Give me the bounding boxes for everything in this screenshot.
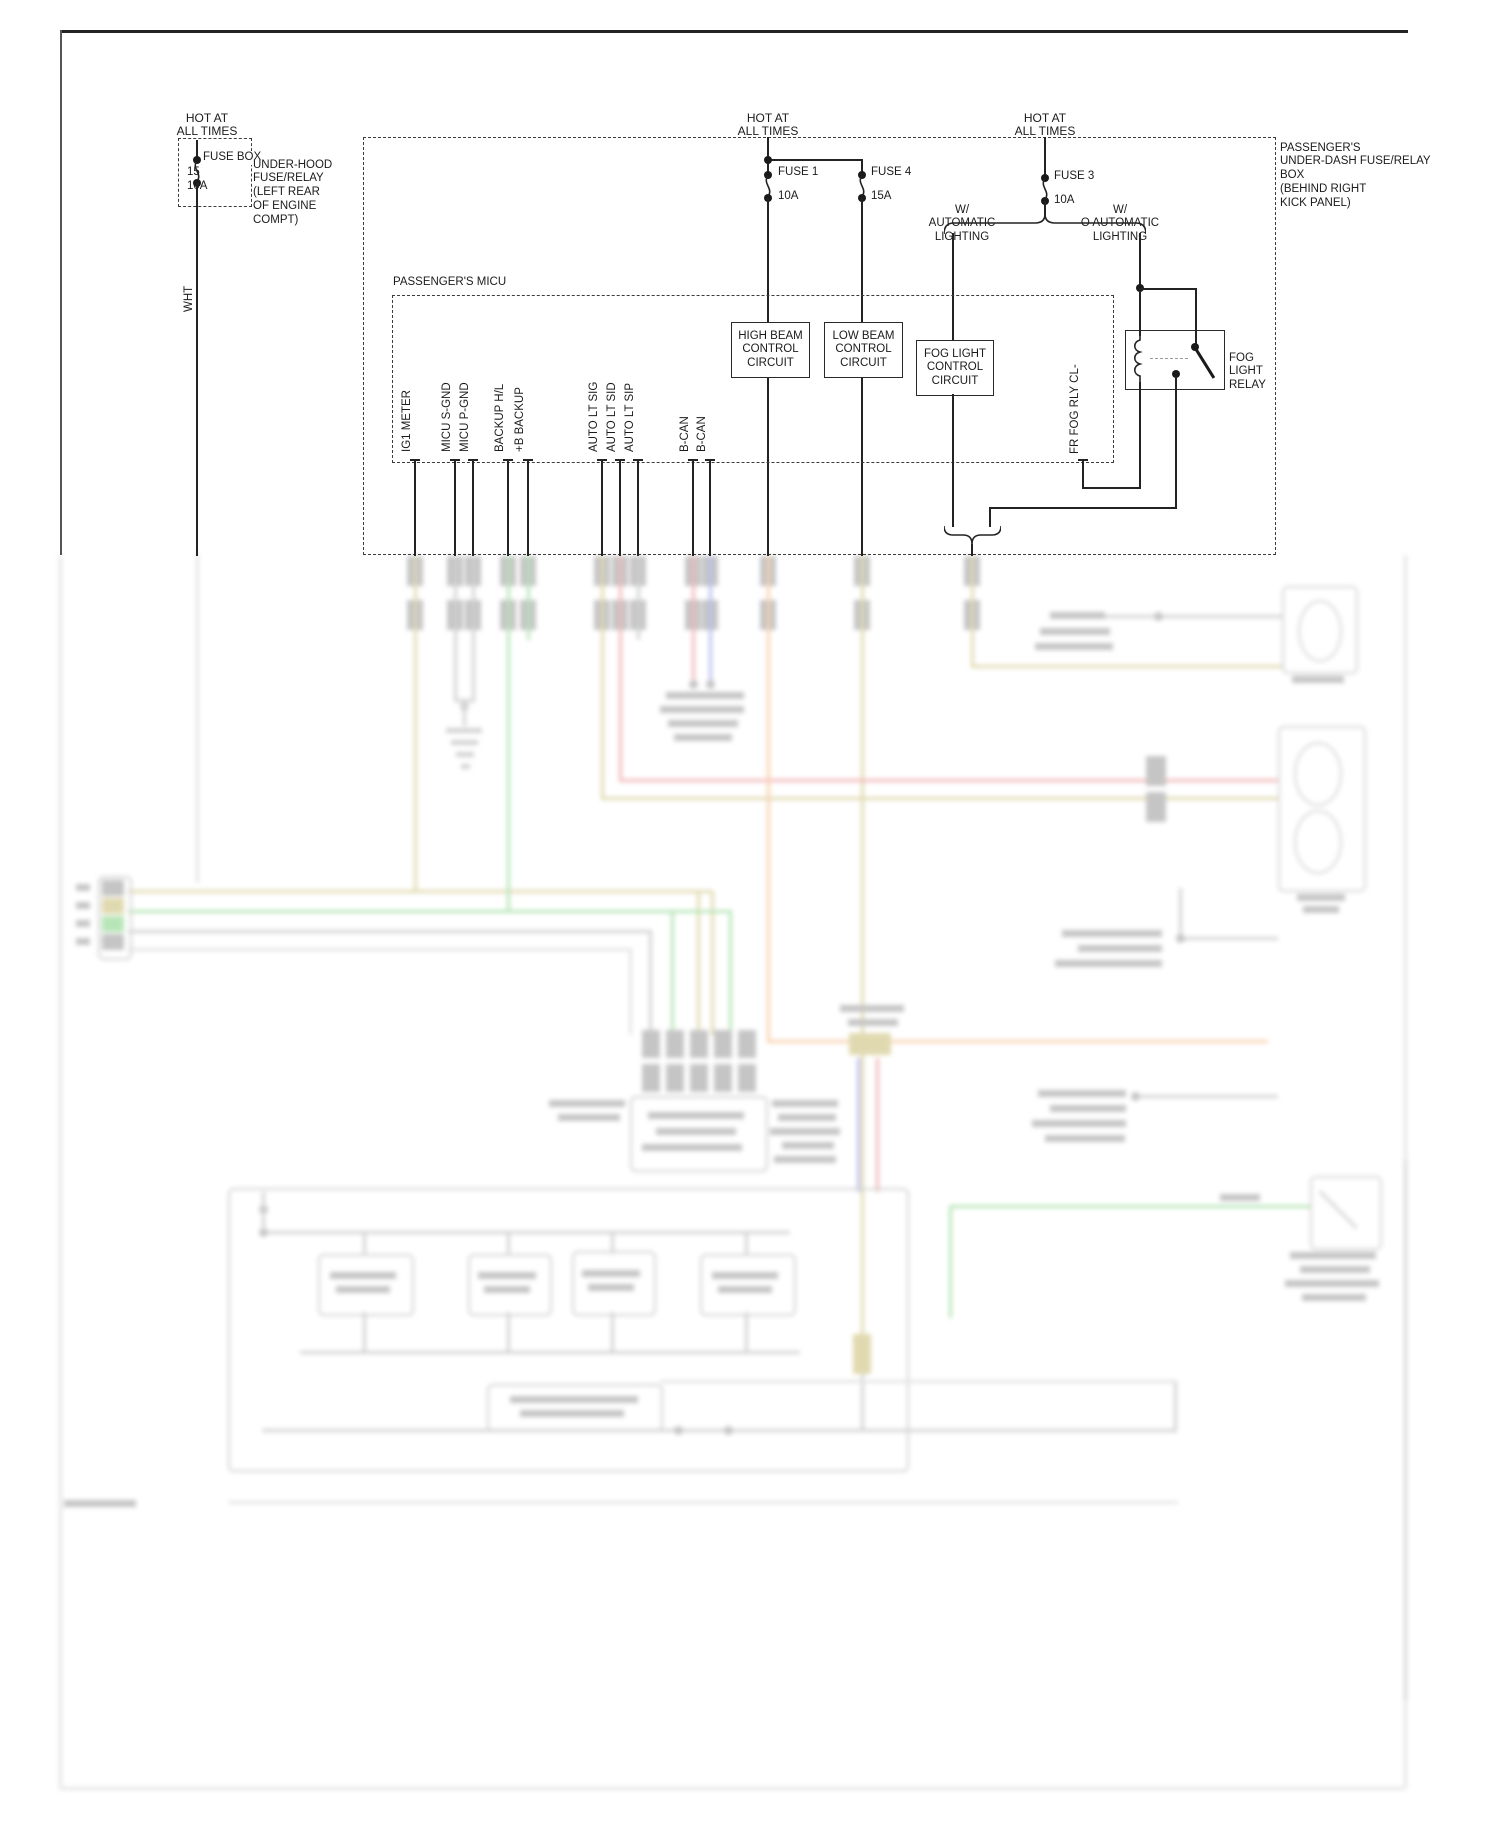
faded-shape (690, 1064, 708, 1092)
faded-shape (1135, 1095, 1278, 1098)
faded-shape (601, 556, 604, 800)
wiring-diagram-page: HOT ATALL TIMES HOT ATALL TIMES HOT ATAL… (0, 0, 1500, 1828)
faded-shape (767, 556, 770, 1043)
underhood-note: UNDER-HOODFUSE/RELAY(LEFT REAROF ENGINEC… (253, 131, 332, 255)
pin-wire (454, 461, 456, 556)
fuse-element-icon (1039, 178, 1051, 201)
pin-tick (410, 459, 420, 461)
faded-shape (527, 556, 530, 640)
faded-shape (602, 797, 1278, 800)
wire (1044, 137, 1046, 178)
faded-shape (318, 1254, 414, 1316)
faded-shape (484, 1286, 530, 1293)
faded-shape (637, 556, 640, 640)
fog-light-relay-label: FOGLIGHTRELAY (1229, 324, 1266, 421)
faded-shape (648, 1112, 744, 1119)
wire (952, 394, 954, 527)
frame-top (60, 30, 1408, 33)
faded-shape (64, 1500, 136, 1507)
fuse4-amps: 15A (871, 190, 891, 204)
faded-shape (712, 1272, 778, 1279)
faded-shape (414, 556, 417, 893)
faded-shape (128, 890, 712, 893)
wire (767, 159, 863, 161)
faded-shape (1146, 756, 1166, 786)
faded-shape (330, 1272, 396, 1279)
faded-shape (772, 1100, 838, 1107)
faded-shape (363, 1232, 366, 1254)
faded-shape (949, 1206, 952, 1318)
pin-wire (472, 461, 474, 556)
faded-shape (60, 1787, 1405, 1790)
faded-shape (770, 1128, 840, 1135)
faded-shape (1050, 1105, 1126, 1112)
faded-shape (1310, 1176, 1382, 1250)
wire (1139, 288, 1197, 290)
wire (1139, 382, 1141, 489)
pin-wire (527, 461, 529, 556)
fuse-left-number: 15 (187, 166, 200, 180)
faded-shape (1038, 1090, 1126, 1097)
fog-light-control-circuit-box: FOG LIGHTCONTROLCIRCUIT (916, 340, 994, 396)
faded-shape (1045, 1135, 1125, 1142)
faded-shape (709, 556, 712, 684)
faded-shape (76, 902, 90, 909)
low-beam-control-circuit-box: LOW BEAMCONTROLCIRCUIT (824, 322, 903, 378)
pin-tick (1078, 459, 1088, 461)
faded-shape (1176, 934, 1185, 943)
pin-wire (414, 461, 416, 556)
faded-shape (454, 556, 457, 702)
faded-shape (461, 764, 470, 769)
faded-shape (1154, 612, 1163, 621)
faded-shape (1105, 615, 1282, 618)
faded-shape (507, 556, 510, 913)
pin-wire (692, 461, 694, 556)
faded-shape (745, 1312, 748, 1352)
faded-shape (472, 556, 475, 702)
faded-shape (76, 884, 90, 891)
faded-shape (714, 1064, 732, 1092)
faded-shape (1055, 960, 1162, 967)
wire (1175, 377, 1177, 509)
pin-tick (615, 459, 625, 461)
wire (989, 507, 1177, 509)
faded-shape (262, 1429, 1175, 1432)
faded-shape (507, 1232, 510, 1254)
faded-shape (1303, 906, 1339, 913)
junction-dot (764, 156, 772, 164)
faded-shape (558, 1114, 620, 1121)
faded-shape (1294, 810, 1342, 874)
faded-shape (642, 1144, 742, 1151)
faded-shape (656, 1128, 736, 1135)
pin-wire (619, 461, 621, 556)
faded-shape (668, 720, 738, 727)
faded-shape (611, 1312, 614, 1352)
faded-shape (972, 665, 1282, 668)
faded-shape (674, 734, 732, 741)
pin-tick (503, 459, 513, 461)
faded-shape (228, 1501, 1178, 1504)
pin-tick (523, 459, 533, 461)
faded-shape (768, 1040, 1268, 1043)
faded-shape (1404, 1160, 1407, 1700)
faded-shape (666, 692, 744, 699)
faded-shape (642, 1030, 660, 1058)
pin-wire (637, 461, 639, 556)
faded-shape (263, 1231, 790, 1234)
faded-shape (642, 1064, 660, 1092)
faded-shape (1292, 676, 1344, 683)
pin-tick (597, 459, 607, 461)
faded-shape (619, 556, 622, 782)
faded-shape (848, 1019, 898, 1026)
faded-shape (1302, 1294, 1366, 1301)
faded-shape (689, 680, 698, 689)
faded-shape (487, 1384, 663, 1432)
faded-shape (620, 779, 1278, 782)
pin-tick (450, 459, 460, 461)
faded-shape (629, 949, 632, 1035)
faded-shape (1032, 1120, 1126, 1127)
faded-shape (1300, 1266, 1370, 1273)
faded-shape (1179, 888, 1182, 938)
faded-shape (336, 1286, 390, 1293)
pin-tick (633, 459, 643, 461)
faded-shape (876, 1058, 879, 1192)
faded-shape (451, 740, 478, 745)
faded-shape (196, 553, 199, 883)
fuse-element-icon (856, 175, 868, 198)
faded-shape (1035, 643, 1113, 650)
brace-icon (944, 214, 1146, 234)
fuse-element-icon (762, 175, 774, 198)
brace-icon (944, 526, 1001, 544)
faded-shape (666, 1030, 684, 1058)
faded-shape (588, 1284, 634, 1291)
faded-shape (738, 1030, 756, 1058)
high-beam-control-circuit-box: HIGH BEAMCONTROLCIRCUIT (731, 322, 810, 378)
faded-shape (456, 752, 474, 757)
faded-shape (460, 702, 469, 711)
faded-shape (1131, 1092, 1140, 1101)
faded-shape (76, 920, 90, 927)
faded-shape (706, 680, 715, 689)
underdash-note: PASSENGER'SUNDER-DASH FUSE/RELAYBOX(BEHI… (1280, 114, 1431, 238)
pin-wire (709, 461, 711, 556)
relay-coil-icon (1132, 336, 1148, 382)
faded-shape (692, 556, 695, 684)
faded-shape (690, 1030, 708, 1058)
wire (971, 544, 973, 556)
faded-shape (102, 898, 124, 914)
faded-shape (478, 1272, 536, 1279)
faded-shape (711, 891, 714, 1035)
faded-shape (582, 1270, 640, 1277)
faded-shape (1050, 612, 1105, 619)
faded-shape (102, 880, 124, 896)
pin-tick (705, 459, 715, 461)
faded-shape (520, 1410, 624, 1417)
faded-shape (1298, 600, 1342, 662)
faded-shape (857, 1058, 860, 1192)
faded-shape (697, 891, 700, 1035)
wire (1139, 233, 1141, 289)
fuse1-amps: 10A (778, 190, 798, 204)
relay-link-dashed (1150, 358, 1188, 359)
wire-wht (196, 183, 198, 556)
faded-shape (649, 931, 652, 1035)
faded-shape (778, 1114, 836, 1121)
faded-shape (76, 938, 90, 945)
faded-shape (971, 556, 974, 668)
faded-shape (745, 1232, 748, 1254)
faded-shape (1174, 1381, 1177, 1432)
faded-shape (674, 1426, 683, 1435)
faded-shape (300, 1351, 800, 1354)
faded-shape (128, 930, 652, 933)
faded-shape (840, 1005, 904, 1012)
faded-shape (666, 1064, 684, 1092)
faded-shape (1297, 894, 1345, 901)
wire (1082, 487, 1141, 489)
pin-wire (601, 461, 603, 556)
faded-shape (468, 1254, 552, 1316)
faded-shape (1146, 792, 1166, 822)
faded-shape (738, 1064, 756, 1092)
faded-shape (611, 1232, 614, 1254)
faded-shape (700, 1254, 796, 1316)
faded-shape (262, 1192, 265, 1232)
faded-shape (363, 1312, 366, 1352)
faded-shape (950, 1205, 1312, 1208)
faded-shape (507, 1312, 510, 1352)
pin-tick (468, 459, 478, 461)
faded-shape (59, 555, 62, 1788)
frame-left (60, 30, 62, 555)
faded-shape (671, 911, 674, 1035)
faded-shape (660, 706, 744, 713)
faded-shape (724, 1426, 733, 1435)
wire (1082, 461, 1084, 489)
fuse-left-amps: 10A (187, 180, 207, 194)
faded-shape (729, 911, 732, 1035)
faded-shape (1078, 945, 1162, 952)
faded-shape (1180, 937, 1278, 940)
pin-wire (507, 461, 509, 556)
faded-shape (782, 1142, 834, 1149)
pin-tick (688, 459, 698, 461)
faded-shape (549, 1100, 625, 1107)
faded-shape (774, 1156, 836, 1163)
faded-shape (1290, 1252, 1376, 1259)
faded-shape (128, 948, 632, 951)
faded-shape (849, 1033, 891, 1055)
faded-shape (718, 1286, 772, 1293)
faded-shape (102, 916, 124, 932)
faded-shape (128, 910, 732, 913)
wire (989, 507, 991, 527)
faded-shape (660, 1380, 1175, 1383)
faded-shape (510, 1396, 638, 1403)
faded-shape (1285, 1280, 1379, 1287)
fuse1-name: FUSE 1 (778, 166, 818, 180)
faded-shape (446, 728, 482, 733)
faded-shape (1040, 628, 1110, 635)
faded-shape (1294, 742, 1342, 806)
wire (1139, 288, 1141, 336)
micu-title: PASSENGER'S MICU (393, 276, 506, 290)
faded-shape (102, 934, 124, 950)
faded-shape (1062, 930, 1162, 937)
faded-shape (1220, 1194, 1260, 1201)
faded-shape (714, 1030, 732, 1058)
